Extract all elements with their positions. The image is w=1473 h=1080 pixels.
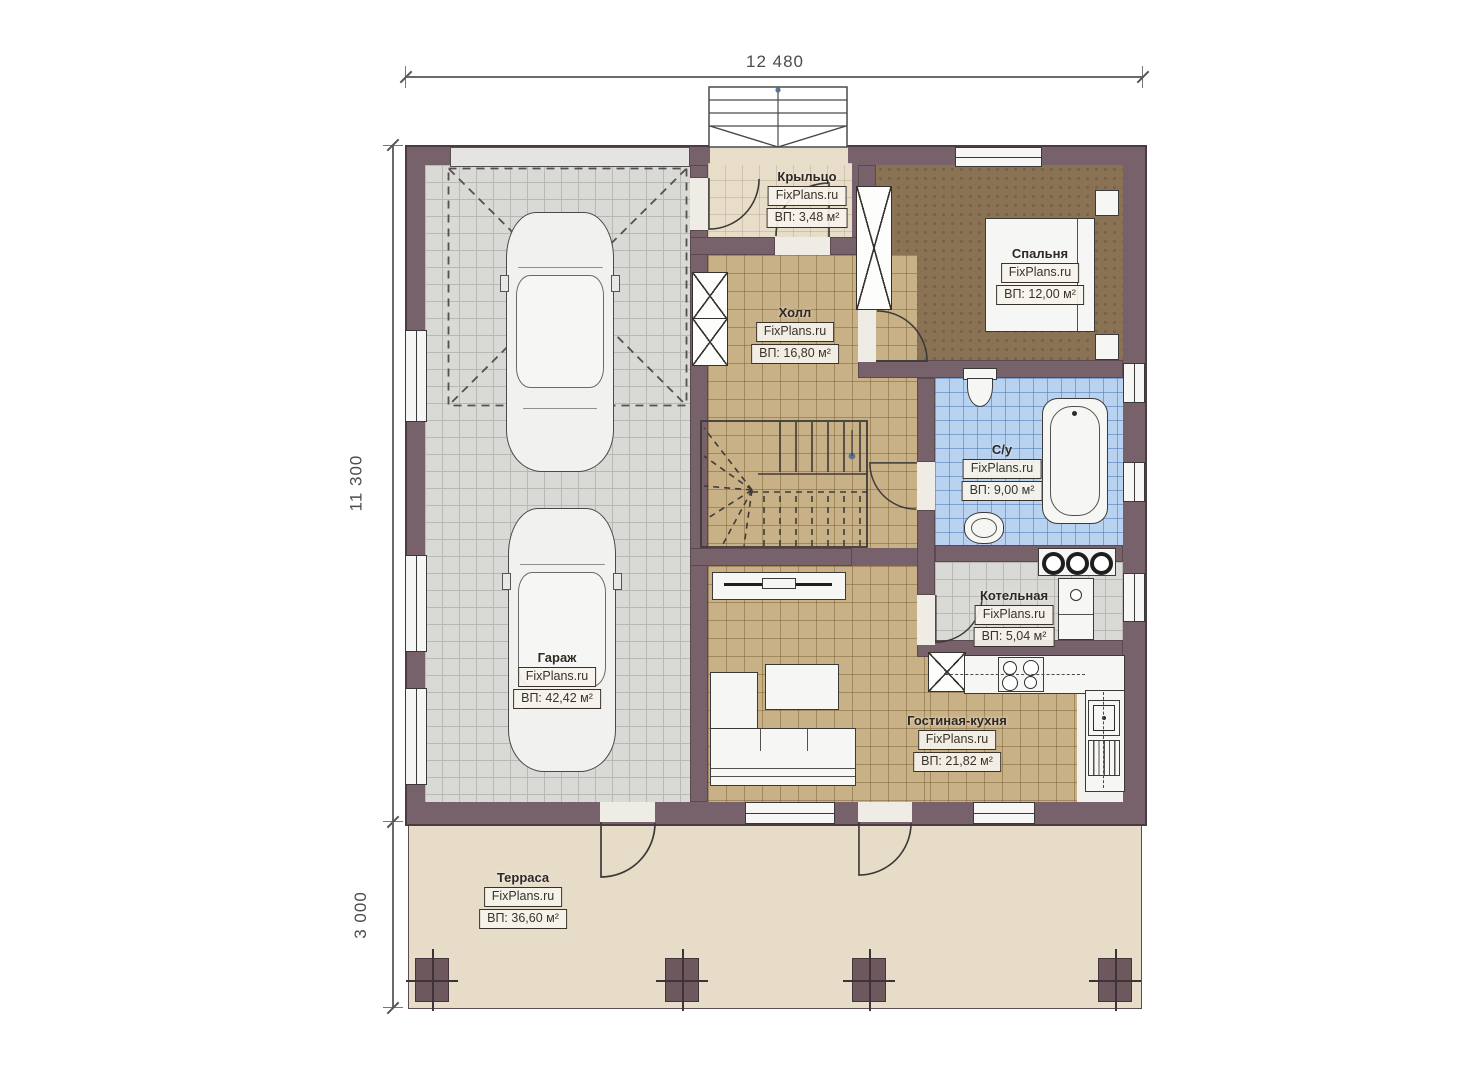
vent-shaft	[928, 652, 966, 692]
room-area: ВП: 3,48 м²	[767, 208, 848, 228]
watermark: FixPlans.ru	[518, 667, 597, 687]
vent-shaft	[692, 272, 728, 320]
door-opening	[600, 802, 655, 822]
entry-steps	[708, 86, 848, 148]
washbasin-bowl	[971, 518, 997, 538]
nightstand	[1095, 190, 1119, 216]
car	[506, 212, 614, 472]
label-garage: Гараж FixPlans.ru ВП: 42,42 м²	[513, 650, 601, 709]
burner	[1024, 676, 1037, 689]
wall	[690, 237, 775, 255]
burner	[1002, 675, 1018, 691]
dishwasher	[1088, 740, 1120, 776]
window	[1123, 363, 1145, 403]
watermark: FixPlans.ru	[918, 730, 997, 750]
washbasin	[964, 512, 1004, 544]
room-area: ВП: 9,00 м²	[962, 481, 1043, 501]
terrace-post	[415, 958, 449, 1002]
room-area: ВП: 12,00 м²	[996, 285, 1084, 305]
room-name: Гостиная-кухня	[907, 713, 1007, 728]
room-name: Гараж	[538, 650, 577, 665]
wall	[690, 548, 852, 566]
car-mirror	[500, 275, 509, 292]
terrace-post	[1098, 958, 1132, 1002]
door-opening	[917, 462, 935, 510]
staircase	[700, 420, 868, 548]
kitchen-sink	[1088, 700, 1120, 736]
room-area: ВП: 5,04 м²	[974, 627, 1055, 647]
car-mirror	[613, 573, 622, 590]
boiler-manifold	[1038, 548, 1116, 576]
wall	[917, 378, 935, 462]
vent-shaft	[856, 186, 892, 310]
watermark: FixPlans.ru	[975, 605, 1054, 625]
door-opening	[858, 802, 912, 822]
watermark: FixPlans.ru	[756, 322, 835, 342]
dimension-line-terrace	[392, 822, 394, 1008]
vent-shaft	[692, 318, 728, 366]
dimension-height-main: 11 300	[347, 455, 367, 512]
room-name: Котельная	[980, 588, 1048, 603]
door-bathroom	[869, 462, 917, 510]
label-bedroom: Спальня FixPlans.ru ВП: 12,00 м²	[996, 246, 1084, 305]
dimension-line-left	[392, 145, 394, 822]
door-living-terrace	[858, 822, 912, 876]
label-bathroom: С/у FixPlans.ru ВП: 9,00 м²	[962, 442, 1043, 501]
room-name: С/у	[992, 442, 1012, 457]
door-opening	[858, 310, 876, 362]
room-area: ВП: 21,82 м²	[913, 752, 1001, 772]
watermark: FixPlans.ru	[963, 459, 1042, 479]
terrace-post	[665, 958, 699, 1002]
room-area: ВП: 36,60 м²	[479, 909, 567, 929]
label-boiler: Котельная FixPlans.ru ВП: 5,04 м²	[974, 588, 1055, 647]
room-name: Холл	[779, 305, 812, 320]
room-name: Терраса	[497, 870, 549, 885]
dimension-width: 12 480	[746, 52, 804, 72]
floor-plan: Крыльцо FixPlans.ru ВП: 3,48 м² Спальня …	[0, 0, 1473, 1080]
bathtub-inner	[1050, 406, 1100, 516]
porch-top-opening	[710, 147, 848, 165]
wall	[690, 165, 708, 178]
upper-cabinet-line	[1103, 692, 1104, 788]
watermark: FixPlans.ru	[484, 887, 563, 907]
terrace-post	[852, 958, 886, 1002]
wall	[917, 510, 935, 595]
boiler-dial	[1070, 589, 1082, 601]
car	[508, 508, 616, 772]
coffee-table	[765, 664, 839, 710]
window	[973, 802, 1035, 824]
valve	[1042, 552, 1065, 575]
door-opening	[775, 237, 830, 255]
label-porch: Крыльцо FixPlans.ru ВП: 3,48 м²	[767, 169, 848, 228]
window	[745, 802, 835, 824]
room-area: ВП: 16,80 м²	[751, 344, 839, 364]
watermark: FixPlans.ru	[768, 186, 847, 206]
door-bedroom	[876, 310, 928, 362]
car-cabin	[516, 275, 604, 389]
bathtub-drain	[1072, 411, 1077, 416]
valve	[1066, 552, 1089, 575]
room-name: Крыльцо	[777, 169, 836, 184]
valve	[1090, 552, 1113, 575]
sofa-seat	[710, 728, 856, 786]
burner	[1003, 661, 1017, 675]
dimension-height-terrace: 3 000	[351, 891, 371, 939]
door-porch-garage	[708, 178, 760, 230]
label-living: Гостиная-кухня FixPlans.ru ВП: 21,82 м²	[907, 713, 1007, 772]
window	[1123, 573, 1145, 622]
tv-bracket	[762, 578, 796, 589]
car-mirror	[502, 573, 511, 590]
room-area: ВП: 42,42 м²	[513, 689, 601, 709]
window	[405, 555, 427, 652]
door-garage-terrace	[600, 822, 656, 878]
watermark: FixPlans.ru	[1001, 263, 1080, 283]
nightstand	[1095, 334, 1119, 360]
window	[405, 688, 427, 785]
door-opening	[690, 178, 708, 230]
label-hall: Холл FixPlans.ru ВП: 16,80 м²	[751, 305, 839, 364]
window	[405, 330, 427, 422]
window	[955, 147, 1042, 167]
upper-cabinet-line	[945, 674, 1085, 675]
room-name: Спальня	[1012, 246, 1068, 261]
garage-gate-opening	[450, 147, 690, 167]
label-terrace: Терраса FixPlans.ru ВП: 36,60 м²	[479, 870, 567, 929]
car-mirror	[611, 275, 620, 292]
door-opening	[917, 595, 935, 645]
dimension-line-top	[405, 76, 1143, 78]
bathtub	[1042, 398, 1108, 524]
boiler-unit	[1058, 578, 1094, 640]
window	[1123, 462, 1145, 502]
